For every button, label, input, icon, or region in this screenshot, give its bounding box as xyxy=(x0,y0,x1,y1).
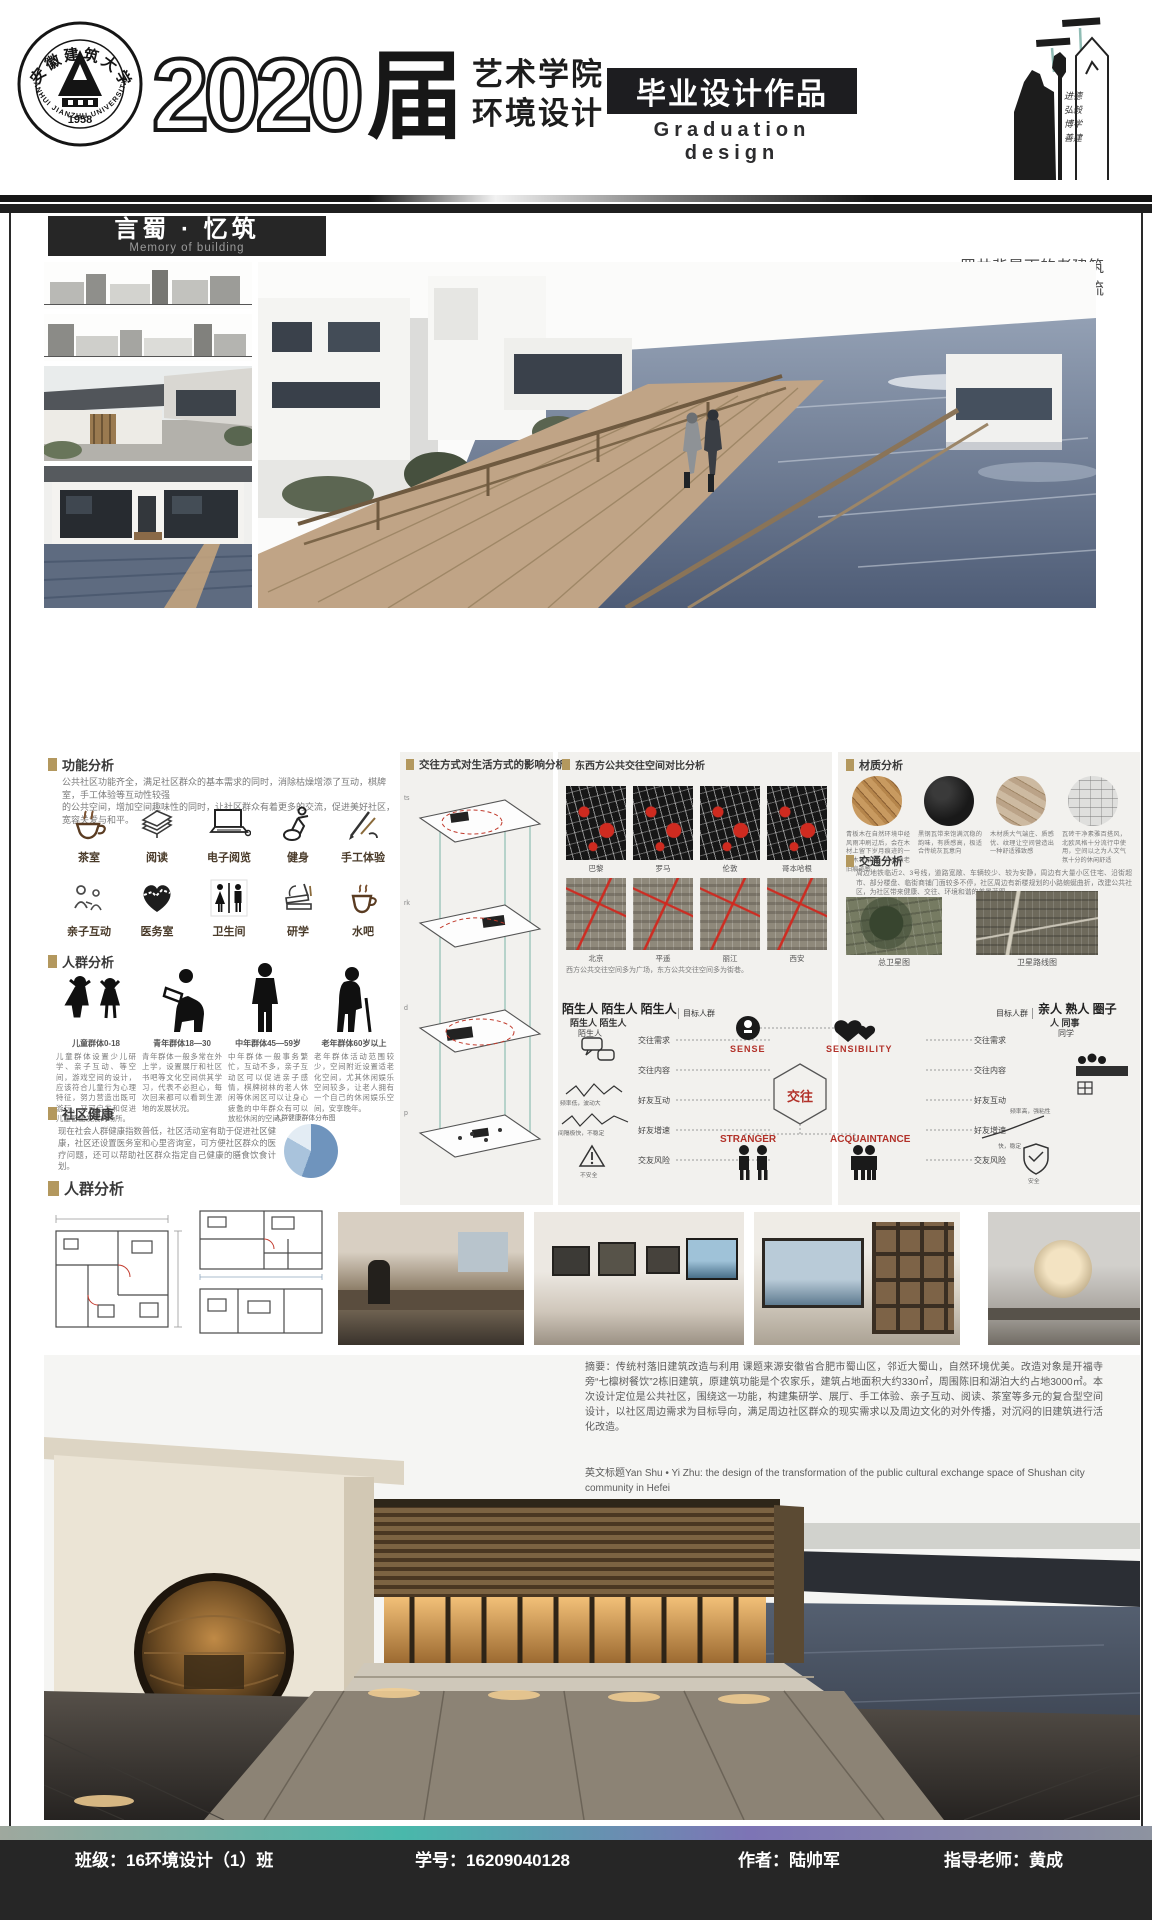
axon-layer-label: p xyxy=(404,1110,408,1117)
satellite-street-map xyxy=(767,878,827,950)
function-label: 茶室 xyxy=(54,849,124,865)
university-seal-icon: 安徽建筑大学 ANHUI JIANZHU UNIVERSITY 1958 xyxy=(16,20,144,148)
friends-cloud-line1: 亲人 熟人 圈子 xyxy=(1038,1000,1117,1017)
right-edge-rule xyxy=(1141,213,1143,1826)
friends-cloud-line3: 同学 xyxy=(1058,1028,1074,1039)
diagram-row-label: 交往内容 xyxy=(974,1065,1006,1076)
lake-window xyxy=(762,1238,864,1308)
children-silhouette-icon xyxy=(62,972,128,1034)
function-label: 医务室 xyxy=(122,923,192,939)
banner-text-en: Graduation design xyxy=(607,119,857,165)
dept-line1: 艺术学院 xyxy=(472,56,604,95)
elevation-thumb-1 xyxy=(44,262,252,309)
footer-class: 班级：16环境设计（1）班 xyxy=(75,1846,273,1871)
motto-1: 进德 xyxy=(1060,90,1086,104)
banner-box: 毕业设计作品 xyxy=(607,68,857,114)
health-text: 现在社会人群健康指数普低，社区活动室有助于促进社区健康，社区还设置医务室和心里咨… xyxy=(58,1126,276,1173)
sense-head-icon xyxy=(736,1016,760,1040)
main-render xyxy=(258,262,1096,608)
figure-ground-map xyxy=(566,786,626,860)
plan-section-header: 人群分析 xyxy=(48,1178,124,1199)
facade-render-thumb xyxy=(44,466,252,608)
traffic-satellite-map-1 xyxy=(846,897,942,955)
compare-heading: 东西方公共交往空间对比分析 xyxy=(575,757,705,772)
right-note-1: 频率高，强粘性 xyxy=(1010,1106,1051,1115)
plan-heading: 人群分析 xyxy=(64,1178,124,1199)
function-section-header: 功能分析 xyxy=(48,755,114,774)
handcraft-icon xyxy=(343,804,383,844)
traffic-map1-label: 总卫星图 xyxy=(846,957,942,968)
youth-silhouette-icon xyxy=(148,966,218,1034)
study-icon xyxy=(278,878,318,918)
far-right-building xyxy=(946,354,1062,450)
health-pie-label: 人群健康群体分布图 xyxy=(262,1112,348,1122)
motto-2: 弘毅 xyxy=(1060,104,1086,118)
reading-icon xyxy=(137,804,177,844)
project-title-box: 言蜀 · 忆筑 Memory of building xyxy=(48,216,326,256)
function-item: 电子阅览 xyxy=(190,804,268,865)
stranger-label: STRANGER xyxy=(720,1134,776,1145)
stranger-cloud-line1: 陌生人 陌生人 陌生人 xyxy=(562,1000,677,1017)
traffic-satellite-map-2 xyxy=(976,891,1098,955)
west-city-label: 罗马 xyxy=(633,863,693,874)
left-note-1: 频率低，波动大 xyxy=(560,1098,601,1107)
material-swatch-wood xyxy=(852,776,902,826)
section-bullet-icon xyxy=(846,759,854,771)
crowd-group-label: 青年群体18—30 xyxy=(140,1038,224,1049)
interior-photo-library xyxy=(754,1212,960,1345)
axon-diagram xyxy=(410,778,550,1198)
dept-line2: 环境设计 xyxy=(472,95,604,134)
footer-gradient-strip xyxy=(0,1826,1152,1840)
function-label: 亲子互动 xyxy=(54,923,124,939)
fitness-icon xyxy=(278,804,318,844)
target-left-label: 目标人群 xyxy=(678,1008,715,1019)
framed-picture xyxy=(646,1246,680,1274)
material-note: 瓦砖干净素雅百搭风，北欧风格十分流行中使用，空间以之为人文气氛十分的休闲舒适 xyxy=(1062,831,1126,866)
function-label: 水吧 xyxy=(328,923,398,939)
function-item: 阅读 xyxy=(122,804,192,865)
left-note-3: 不安全 xyxy=(580,1170,597,1179)
material-note: 黑钢瓦带来饱满沉稳的韵味，有质感高，极适合传统灰瓦意向 xyxy=(918,831,982,857)
figure-ground-map xyxy=(767,786,827,860)
function-item: 健身 xyxy=(266,804,330,865)
diagram-row-label: 好友互动 xyxy=(638,1095,670,1106)
diagram-row-label: 交友风险 xyxy=(974,1155,1006,1166)
abstract-text-en: 英文标题Yan Shu • Yi Zhu: the design of the … xyxy=(585,1466,1103,1496)
material-swatch-white-brick xyxy=(1068,776,1118,826)
function-label: 研学 xyxy=(266,923,330,939)
interior-photo-lounge xyxy=(338,1212,524,1345)
sensibility-hearts-icon xyxy=(834,1020,875,1042)
batch-title: 2020届 xyxy=(152,44,464,146)
function-item: 水吧 xyxy=(328,878,398,939)
function-label: 阅读 xyxy=(122,849,192,865)
water-bar-icon xyxy=(343,878,383,918)
right-note-2: 快，稳定 xyxy=(998,1141,1021,1150)
crowd-heading: 人群分析 xyxy=(62,952,114,971)
crowd-group-label: 中年群体45—59岁 xyxy=(226,1038,310,1049)
footer-bar: 班级：16环境设计（1）班 学号：16209040128 作者：陆帅军 指导老师… xyxy=(0,1840,1152,1920)
elevation-thumb-2 xyxy=(44,314,252,361)
sense-label: SENSE xyxy=(730,1044,766,1054)
e-reading-icon xyxy=(207,804,251,844)
center-label: 交往 xyxy=(786,1086,814,1105)
diagram-row-label: 好友互动 xyxy=(974,1095,1006,1106)
interior-photo-room xyxy=(988,1212,1140,1345)
interaction-section-header: 交往方式对生活方式的影响分析 xyxy=(406,757,566,772)
school-motto: 进德 弘毅 博学 善建 xyxy=(1060,90,1086,146)
footer-advisor: 指导老师：黄成 xyxy=(944,1846,1063,1871)
function-desc-line1: 公共社区功能齐全，满足社区群众的基本需求的同时，消除枯燥增添了互动，棋牌室，手工… xyxy=(62,776,398,801)
group-people-icon xyxy=(1076,1054,1128,1077)
volatility-line-icon xyxy=(566,1084,622,1096)
grid-box-icon xyxy=(1078,1082,1092,1094)
function-label: 健身 xyxy=(266,849,330,865)
material-section-header: 材质分析 xyxy=(846,757,903,773)
acquaintance-label: ACQUAINTANCE xyxy=(830,1134,910,1145)
header-divider-top xyxy=(0,195,1152,202)
department-lines: 艺术学院 环境设计 xyxy=(472,56,604,134)
function-item: 手工体验 xyxy=(328,804,398,865)
stranger-cloud-line3: 陌生人 xyxy=(578,1028,602,1039)
function-item: 亲子互动 xyxy=(54,878,124,939)
chat-icon xyxy=(582,1038,614,1060)
east-city-label: 北京 xyxy=(566,953,626,964)
traffic-section-header: 交通分析 xyxy=(846,853,903,869)
health-heading: 社区健康 xyxy=(62,1104,114,1123)
warning-triangle-icon xyxy=(580,1146,604,1166)
adult-silhouette-icon xyxy=(238,962,292,1034)
west-city-label: 伦敦 xyxy=(700,863,760,874)
floor-plans xyxy=(48,1205,330,1345)
crowd-group-label: 老年群体60岁以上 xyxy=(312,1038,396,1049)
satellite-street-map xyxy=(700,878,760,950)
left-edge-rule xyxy=(9,213,11,1826)
project-title-en: Memory of building xyxy=(48,242,326,254)
interior-photo-gallery xyxy=(534,1212,744,1345)
section-bullet-icon xyxy=(48,1181,59,1196)
interaction-relationship-diagram: 陌生人 陌生人 陌生人 陌生人 陌生人 陌生人 目标人群 交往需求 交往内容 好… xyxy=(558,998,1140,1205)
function-item: 茶室 xyxy=(54,804,124,865)
traffic-map2-label: 卫星路线图 xyxy=(976,957,1098,968)
section-bullet-icon xyxy=(562,759,570,770)
material-swatch-black-tile xyxy=(924,776,974,826)
east-city-label: 平遥 xyxy=(633,953,693,964)
shield-icon xyxy=(1024,1144,1048,1174)
motto-3: 博学 xyxy=(1060,118,1086,132)
header-divider-bottom xyxy=(0,204,1152,213)
batch-suffix: 届 xyxy=(367,42,464,151)
section-bullet-icon xyxy=(48,1107,57,1120)
acquaintance-figures-icon xyxy=(851,1145,877,1180)
courtyard-render-thumb xyxy=(44,366,252,461)
west-city-label: 哥本哈根 xyxy=(767,863,827,874)
compare-caption: 西方公共交往空间多为广场，东方公共交往空间多为街巷。 xyxy=(566,966,826,976)
crowd-group-label: 儿童群体0-18 xyxy=(54,1038,138,1049)
function-label: 卫生间 xyxy=(190,923,268,939)
diagram-row-label: 交往需求 xyxy=(974,1035,1006,1046)
unstable-line-icon xyxy=(562,1114,628,1126)
diagram-row-label: 好友增速 xyxy=(974,1125,1006,1136)
crowd-group-desc: 青年群体一般多常在外上学，设置展厅和社区书吧等文化空间供其学习，代表不必担心，每… xyxy=(142,1052,222,1114)
function-item: 卫生间 xyxy=(190,878,268,939)
section-bullet-icon xyxy=(48,955,57,968)
figure-ground-map xyxy=(633,786,693,860)
section-bullet-icon xyxy=(846,855,854,867)
axon-layer-label: rk xyxy=(404,900,410,907)
function-heading: 功能分析 xyxy=(62,755,114,774)
health-pie-chart xyxy=(284,1124,338,1178)
restroom-icon xyxy=(209,878,249,918)
function-item: 医务室 xyxy=(122,878,192,939)
interaction-heading: 交往方式对生活方式的影响分析 xyxy=(419,757,566,772)
round-wall-light xyxy=(1034,1240,1092,1298)
material-swatch-light-wood xyxy=(996,776,1046,826)
project-title: 言蜀 · 忆筑 xyxy=(48,216,326,243)
sitting-figure xyxy=(368,1260,390,1304)
footer-student-id: 学号：16209040128 xyxy=(415,1846,570,1871)
section-bullet-icon xyxy=(48,758,57,771)
lake-screen xyxy=(686,1238,738,1280)
east-city-label: 西安 xyxy=(767,953,827,964)
figure-ground-map xyxy=(700,786,760,860)
motto-4: 善建 xyxy=(1060,132,1086,146)
sensibility-label: SENSIBILITY xyxy=(826,1044,893,1054)
satellite-street-map xyxy=(633,878,693,950)
poster: 安徽建筑大学 ANHUI JIANZHU UNIVERSITY 1958 202… xyxy=(0,0,1152,1920)
east-city-label: 丽江 xyxy=(700,953,760,964)
satellite-street-map xyxy=(566,878,626,950)
diagram-row-label: 好友增速 xyxy=(638,1125,670,1136)
axon-layer-label: d xyxy=(404,1005,408,1012)
elderly-silhouette-icon xyxy=(322,964,382,1034)
seal-year: 1958 xyxy=(68,114,92,126)
west-city-label: 巴黎 xyxy=(566,863,626,874)
framed-picture xyxy=(598,1242,636,1276)
traffic-heading: 交通分析 xyxy=(859,853,903,869)
section-bullet-icon xyxy=(406,759,414,770)
function-label: 电子阅览 xyxy=(190,849,268,865)
bench xyxy=(338,1290,524,1310)
batch-year: 2020 xyxy=(152,38,359,152)
right-note-3: 安全 xyxy=(1028,1176,1040,1185)
health-section-header: 社区健康 xyxy=(48,1104,114,1123)
footer-author: 作者：陆帅军 xyxy=(738,1846,840,1871)
compare-section-header: 东西方公共交往空间对比分析 xyxy=(562,757,705,772)
target-right-label: 目标人群 xyxy=(996,1008,1033,1019)
function-item: 研学 xyxy=(266,878,330,939)
material-note: 木材质大气端庄、质感优、纹理让空间营造出一种舒适雅致感 xyxy=(990,831,1054,857)
bookshelf xyxy=(872,1222,954,1334)
axon-layer-label: ts xyxy=(404,795,409,802)
tea-room-icon xyxy=(69,804,109,844)
abstract-text: 摘要：传统村落旧建筑改造与利用 课题来源安徽省合肥市蜀山区，邻近大蜀山，自然环境… xyxy=(585,1360,1103,1435)
framed-picture xyxy=(552,1246,590,1276)
stranger-figures-icon xyxy=(739,1145,768,1180)
banner-text: 毕业设计作品 xyxy=(636,69,828,113)
parent-child-icon xyxy=(69,878,109,918)
diagram-row-label: 交往需求 xyxy=(638,1035,670,1046)
material-heading: 材质分析 xyxy=(859,757,903,773)
function-label: 手工体验 xyxy=(328,849,398,865)
diagram-row-label: 交往内容 xyxy=(638,1065,670,1076)
crowd-group-desc: 老年群体活动范围较少，空间附近设置适老化空间，尤其休闲娱乐空间较多，让老人拥有一… xyxy=(314,1052,394,1114)
console xyxy=(988,1308,1140,1320)
window-glow xyxy=(458,1232,508,1272)
medical-heart-icon xyxy=(137,878,177,918)
crowd-section-header: 人群分析 xyxy=(48,952,114,971)
left-note-2: 间隔极快，不稳定 xyxy=(558,1128,604,1137)
diagram-row-label: 交友风险 xyxy=(638,1155,670,1166)
